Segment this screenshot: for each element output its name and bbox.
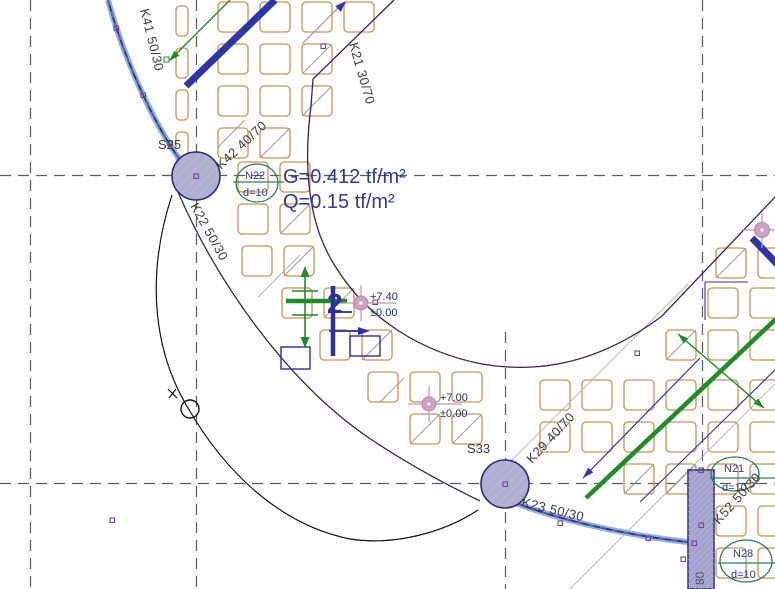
waffle-block <box>344 2 374 32</box>
level-ref: ±0.00 <box>370 307 397 319</box>
beam-label-k41[interactable]: K41 50/30 <box>137 7 167 73</box>
beam-stub-right[interactable] <box>752 238 775 266</box>
slab-outer-edge-k22 <box>178 192 480 501</box>
load-q: Q=0.15 tf/m² <box>283 191 395 213</box>
load-g: G=0.412 tf/m² <box>283 166 406 188</box>
waffle-block <box>582 422 612 452</box>
tag-id: N22 <box>245 170 265 182</box>
waffle-block <box>540 380 570 410</box>
beam-label-k21[interactable]: K21 30/70 <box>346 41 378 106</box>
tag-dia: d=10 <box>731 569 756 581</box>
level-marker-upper[interactable]: +7.40 ±0.00 <box>340 285 398 321</box>
waffle-block <box>238 204 268 234</box>
waffle-block <box>582 380 612 410</box>
drawing-svg: 2 80 +7.40 ±0.00 <box>0 0 775 589</box>
beam-label-k22[interactable]: K22 50/30 <box>187 200 231 263</box>
waffle-block <box>708 288 738 318</box>
level-elev: +7.40 <box>370 291 398 303</box>
column-s25[interactable] <box>172 152 220 200</box>
waffle-block <box>750 288 775 318</box>
dim-arrow-top <box>302 1 346 44</box>
tag-id: N28 <box>733 548 753 560</box>
vertex-markers <box>110 26 704 562</box>
waffle-block <box>666 422 696 452</box>
column-label-s25: S25 <box>158 137 181 152</box>
level-elev: +7.00 <box>440 392 468 404</box>
tag-dia: d=10 <box>243 187 268 199</box>
waffle-block <box>302 2 332 32</box>
column-label-s33: S33 <box>467 441 490 456</box>
level-ref: ±0.00 <box>440 408 467 420</box>
waffle-block <box>260 44 290 74</box>
waffle-block <box>708 380 738 410</box>
waffle-block <box>242 246 272 276</box>
wall-element[interactable]: 80 <box>688 470 714 589</box>
waffle-blocks <box>176 2 775 578</box>
waffle-block <box>260 86 290 116</box>
arc-tick-symbol <box>168 389 177 398</box>
waffle-block <box>750 422 775 452</box>
waffle-block <box>624 380 654 410</box>
waffle-block <box>410 372 440 402</box>
beam-label-k23[interactable]: K23 50/30 <box>520 494 586 524</box>
tag-id: N21 <box>724 463 744 475</box>
waffle-block <box>708 422 738 452</box>
waffle-block <box>368 372 398 402</box>
waffle-block <box>218 86 248 116</box>
arc-loop-symbol <box>181 400 199 418</box>
cad-canvas[interactable]: 2 80 +7.40 ±0.00 <box>0 0 775 589</box>
waffle-block <box>176 6 188 36</box>
waffle-block <box>708 330 738 360</box>
waffle-block <box>758 506 775 536</box>
rebar-tag-n22[interactable]: N22 d=10 <box>233 164 284 202</box>
waffle-block <box>176 90 188 120</box>
load-annotation: G=0.412 tf/m² Q=0.15 tf/m² <box>283 166 406 213</box>
